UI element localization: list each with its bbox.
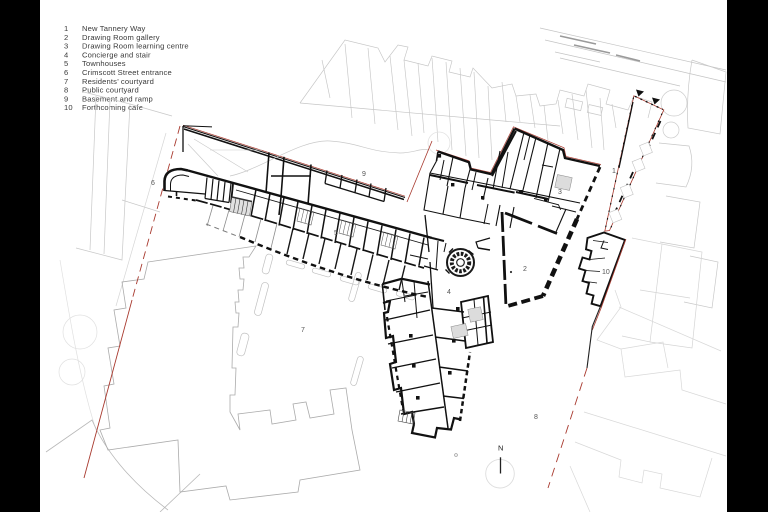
svg-text:7: 7 bbox=[301, 327, 305, 334]
svg-text:3: 3 bbox=[64, 42, 68, 51]
svg-text:New Tannery Way: New Tannery Way bbox=[82, 24, 145, 33]
svg-text:3: 3 bbox=[558, 189, 562, 196]
svg-text:6: 6 bbox=[151, 180, 155, 187]
svg-text:10: 10 bbox=[602, 269, 610, 276]
svg-text:4: 4 bbox=[447, 289, 451, 296]
svg-text:4: 4 bbox=[64, 50, 68, 59]
svg-text:2: 2 bbox=[64, 33, 68, 42]
svg-text:Concierge and stair: Concierge and stair bbox=[82, 50, 151, 59]
svg-text:Drawing Room learning centre: Drawing Room learning centre bbox=[82, 42, 189, 51]
svg-text:Public courtyard: Public courtyard bbox=[82, 86, 139, 95]
svg-text:Forthcoming cafe: Forthcoming cafe bbox=[82, 103, 143, 112]
svg-text:1: 1 bbox=[64, 24, 68, 33]
svg-text:7: 7 bbox=[64, 77, 68, 86]
svg-text:Townhouses: Townhouses bbox=[82, 59, 126, 68]
svg-text:Basement and ramp: Basement and ramp bbox=[82, 94, 153, 103]
svg-text:1: 1 bbox=[612, 168, 616, 175]
svg-text:6: 6 bbox=[64, 68, 68, 77]
svg-text:N: N bbox=[498, 444, 503, 453]
svg-text:Drawing Room gallery: Drawing Room gallery bbox=[82, 33, 160, 42]
svg-text:Residents’ courtyard: Residents’ courtyard bbox=[82, 77, 154, 86]
svg-text:8: 8 bbox=[534, 414, 538, 421]
svg-text:5: 5 bbox=[64, 59, 68, 68]
svg-text:9: 9 bbox=[64, 94, 68, 103]
svg-text:9: 9 bbox=[362, 171, 366, 178]
svg-text:5: 5 bbox=[334, 230, 338, 237]
svg-text:Crimscott Street entrance: Crimscott Street entrance bbox=[82, 68, 172, 77]
svg-text:10: 10 bbox=[64, 103, 73, 112]
svg-text:2: 2 bbox=[523, 266, 527, 273]
svg-text:8: 8 bbox=[64, 86, 68, 95]
